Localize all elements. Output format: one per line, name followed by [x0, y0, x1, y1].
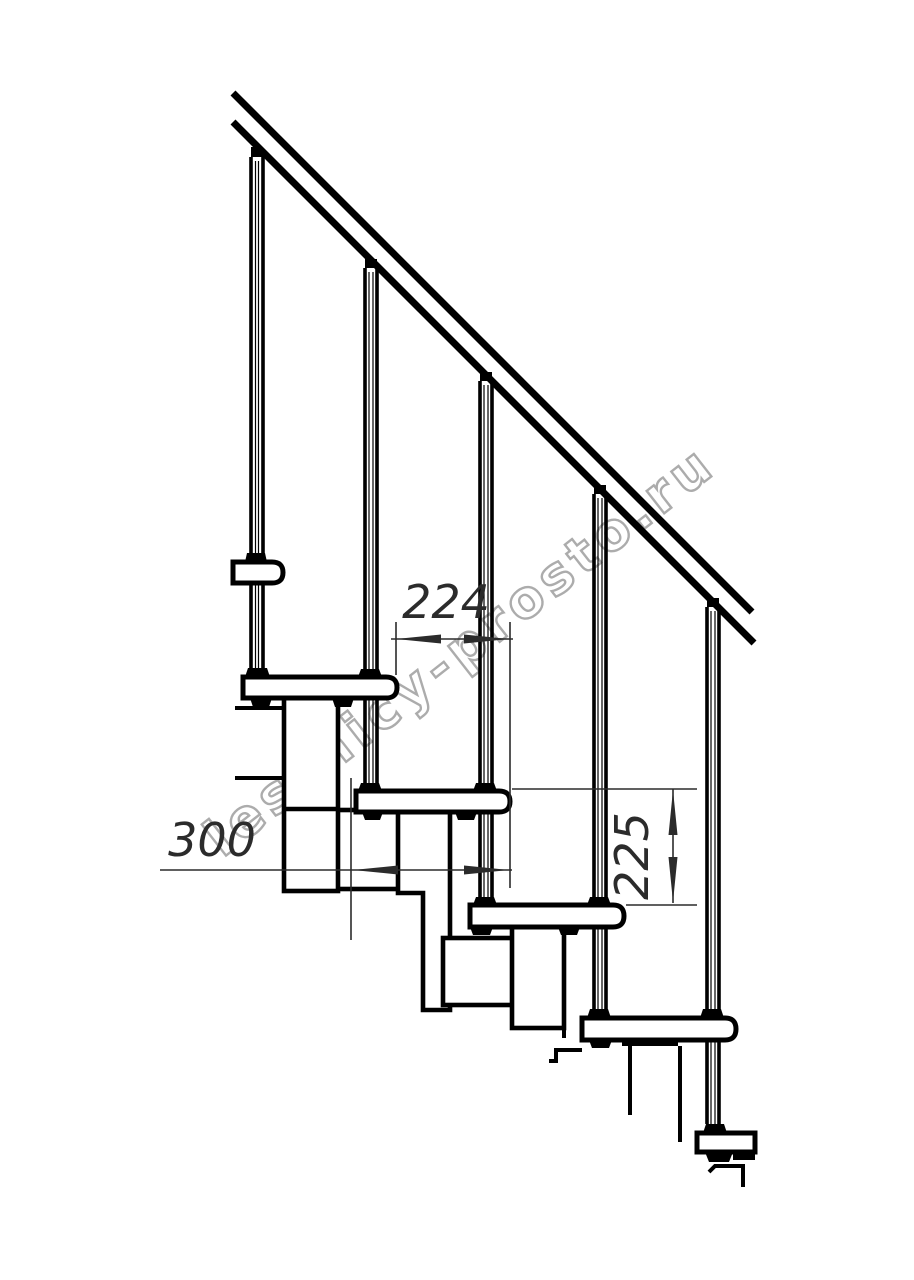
module-column-2 — [284, 698, 338, 891]
tread-2 — [243, 677, 397, 698]
dimension-label-300: 300 — [168, 813, 256, 867]
module-column-4 — [512, 927, 564, 1028]
baluster-1 — [251, 157, 263, 668]
bottom-break — [709, 1166, 743, 1187]
tread-3 — [356, 791, 510, 812]
tread-5 — [582, 1018, 736, 1040]
module-box-4 — [443, 938, 518, 1005]
baluster-5 — [707, 607, 719, 1124]
dimension-label-224: 224 — [402, 575, 490, 629]
tread-1 — [233, 562, 283, 583]
dimension-label-225: 225 — [605, 812, 659, 900]
staircase-technical-drawing: lestnicy-prosto.ru — [0, 0, 914, 1280]
tread-4 — [470, 905, 624, 927]
spine-modules — [235, 698, 743, 1187]
module-break-5 — [549, 1050, 582, 1061]
module-column-5 — [630, 1046, 680, 1142]
module-box-3 — [335, 810, 403, 889]
tread-6 — [697, 1133, 755, 1152]
